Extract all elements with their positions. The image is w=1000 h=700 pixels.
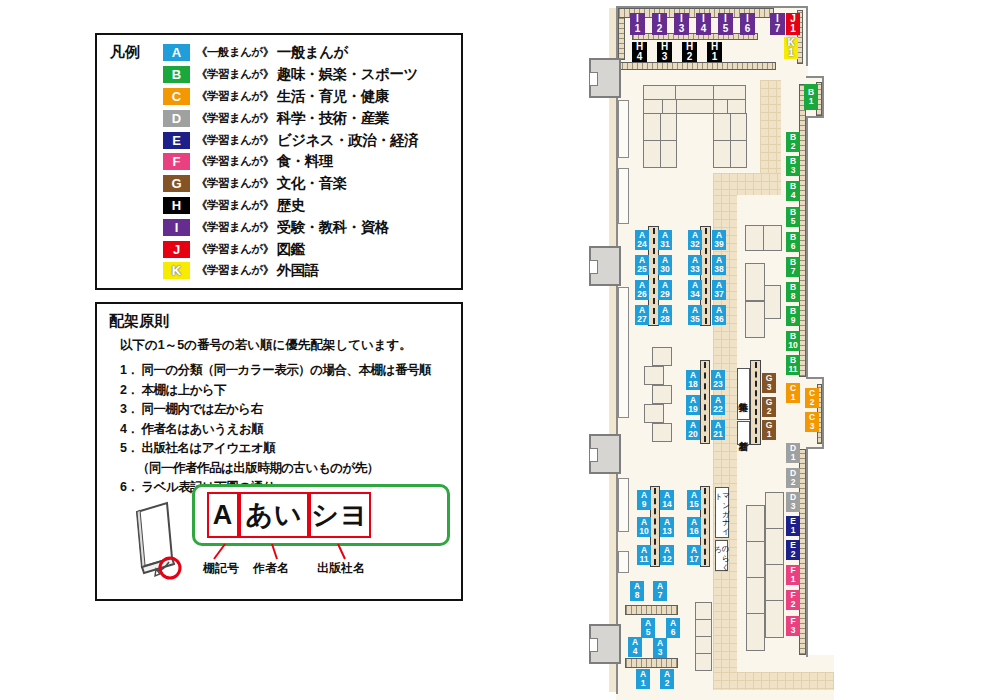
map-label-G3: G3 xyxy=(762,373,776,393)
legend-item-K: K《学習まんが》外国語 xyxy=(163,260,457,282)
side-shelf xyxy=(618,168,629,224)
wall xyxy=(806,116,824,118)
map-label-A2: A2 xyxy=(660,669,674,689)
map-label-A27: A27 xyxy=(635,305,649,325)
wall xyxy=(822,377,824,449)
map-label-text: 2 xyxy=(767,407,772,416)
rule-item-2: 2． 本棚は上から下 xyxy=(120,381,431,401)
map-label-D1: D1 xyxy=(786,443,800,463)
map-label-I7: I7 xyxy=(770,13,785,35)
label-example-box-3: シヨ xyxy=(309,492,371,538)
map-label-B8: B8 xyxy=(786,282,800,302)
legend-panel: 凡例 A《一般まんが》一般まんがB《学習まんが》趣味・娯楽・スポーツC《学習まん… xyxy=(95,33,463,290)
legend-rows: A《一般まんが》一般まんがB《学習まんが》趣味・娯楽・スポーツC《学習まんが》生… xyxy=(163,42,457,282)
map-label-text: 15 xyxy=(689,500,698,509)
map-label-text: 6 xyxy=(671,628,676,637)
table xyxy=(675,85,714,100)
map-label-K1: K1 xyxy=(784,37,798,59)
table xyxy=(676,99,714,114)
map-label-A25: A25 xyxy=(635,255,649,275)
table xyxy=(713,113,731,141)
map-label-D2: D2 xyxy=(786,468,800,488)
map-label-text: 27 xyxy=(637,315,646,324)
door xyxy=(589,624,621,664)
legend-label: 生活・育児・健康 xyxy=(277,87,389,106)
legend-series: 《一般まんが》 xyxy=(196,45,274,60)
shelf-block xyxy=(746,505,765,542)
map-label-text: 17 xyxy=(689,555,698,564)
map-label-text: 3 xyxy=(791,502,796,511)
map-label-B3: B3 xyxy=(786,156,800,176)
table xyxy=(660,113,677,141)
map-label-A3: A3 xyxy=(653,638,667,658)
map-label-text: 31 xyxy=(660,240,669,249)
map-label-text: 34 xyxy=(690,290,699,299)
map-label-A11: A11 xyxy=(637,545,651,565)
map-label-text: 22 xyxy=(713,405,722,414)
map-label-E1: E1 xyxy=(786,516,800,536)
map-label-text: 1 xyxy=(791,393,796,402)
wall-shelf xyxy=(616,62,776,70)
map-label-text: 2 xyxy=(657,24,663,35)
legend-series: 《学習まんが》 xyxy=(196,67,274,82)
map-label-text: 38 xyxy=(714,265,723,274)
map-label-A14: A14 xyxy=(660,490,674,510)
map-note-3: マンガナイト xyxy=(715,487,729,538)
map-label-A24: A24 xyxy=(635,230,649,250)
map-label-H1: H1 xyxy=(707,42,722,62)
book-shelf xyxy=(650,486,660,567)
map-label-text: 6 xyxy=(745,24,751,35)
map-label-A26: A26 xyxy=(635,280,649,300)
shelf-block xyxy=(695,636,712,654)
map-label-text: 19 xyxy=(688,405,697,414)
map-label-text: 2 xyxy=(791,478,796,487)
map-label-text: 1 xyxy=(712,52,718,63)
zigzag-shelf xyxy=(644,366,664,385)
map-label-text: 3 xyxy=(658,648,663,657)
map-label-A8: A8 xyxy=(630,581,644,601)
legend-series: 《学習まんが》 xyxy=(196,89,274,104)
shelf-block xyxy=(745,225,764,251)
map-label-text: 1 xyxy=(788,48,794,59)
map-label-text: 7 xyxy=(775,24,781,35)
map-label-A38: A38 xyxy=(712,255,726,275)
map-label-D3: D3 xyxy=(786,492,800,512)
shelf-block xyxy=(764,285,781,319)
legend-series: 《学習まんが》 xyxy=(196,154,274,169)
legend-label: 食・料理 xyxy=(277,152,333,171)
zigzag-shelf xyxy=(652,423,672,442)
map-label-A39: A39 xyxy=(712,230,726,250)
map-label-C1: C1 xyxy=(786,383,800,403)
book-shelf xyxy=(700,486,710,567)
map-label-text: 1 xyxy=(790,24,796,35)
map-label-text: 7 xyxy=(658,591,663,600)
book-shelf xyxy=(750,360,761,445)
legend-item-E: E《学習まんが》ビジネス・政治・経済 xyxy=(163,129,457,151)
map-label-A36: A36 xyxy=(712,305,726,325)
principles-title: 配架原則 xyxy=(109,312,169,331)
table xyxy=(713,140,731,168)
shelf-block xyxy=(765,564,784,601)
map-label-A1: A1 xyxy=(636,669,650,689)
map-label-I5: I5 xyxy=(718,13,733,35)
map-label-text: 9 xyxy=(642,500,647,509)
map-label-text: 2 xyxy=(791,550,796,559)
map-label-A34: A34 xyxy=(688,280,702,300)
table xyxy=(730,140,747,168)
label-example-box-1: A xyxy=(207,492,239,538)
legend-label: ビジネス・政治・経済 xyxy=(277,131,418,150)
shelf-block xyxy=(695,653,712,671)
table xyxy=(662,99,677,114)
map-label-text: 1 xyxy=(641,679,646,688)
legend-chip-A: A xyxy=(163,44,190,61)
label-caption-3: 出版社名 xyxy=(317,560,365,577)
legend-series: 《学習まんが》 xyxy=(196,263,274,278)
map-label-A5: A5 xyxy=(641,618,655,638)
map-label-A22: A22 xyxy=(711,395,725,415)
zigzag-shelf xyxy=(652,347,672,366)
map-label-text: 2 xyxy=(665,679,670,688)
map-label-A7: A7 xyxy=(653,581,667,601)
map-label-A32: A32 xyxy=(688,230,702,250)
map-label-B10: B10 xyxy=(786,331,800,351)
shelf-block xyxy=(765,492,784,529)
walkway xyxy=(713,672,834,690)
map-label-A28: A28 xyxy=(658,305,672,325)
map-label-text: 12 xyxy=(662,555,671,564)
legend-item-A: A《一般まんが》一般まんが xyxy=(163,42,457,64)
legend-item-G: G《学習まんが》文化・音楽 xyxy=(163,173,457,195)
wall-right xyxy=(806,449,808,657)
map-label-text: 36 xyxy=(714,315,723,324)
map-label-B2: B2 xyxy=(786,132,800,152)
principles-rules: 1． 同一の分類（同一カラー表示）の場合、本棚は番号順2． 本棚は上から下3． … xyxy=(120,361,431,498)
map-label-B7: B7 xyxy=(786,257,800,277)
map-label-H4: H4 xyxy=(632,42,647,62)
shelf-block xyxy=(746,613,765,651)
legend-chip-B: B xyxy=(163,66,190,83)
table xyxy=(643,140,661,168)
map-label-F2: F2 xyxy=(786,590,800,610)
legend-series: 《学習まんが》 xyxy=(196,111,274,126)
legend-label: 歴史 xyxy=(277,196,305,215)
walkway xyxy=(760,80,781,175)
legend-chip-E: E xyxy=(163,132,190,149)
legend-chip-F: F xyxy=(163,153,190,170)
walkway xyxy=(713,173,781,195)
table xyxy=(713,99,728,114)
map-label-text: 1 xyxy=(809,97,814,106)
legend-label: 科学・技術・産業 xyxy=(277,109,389,128)
map-label-A10: A10 xyxy=(637,517,651,537)
map-label-text: 13 xyxy=(662,527,671,536)
shelf-block xyxy=(765,600,784,638)
map-note-4: のらくろ xyxy=(715,540,728,571)
legend-label: 一般まんが xyxy=(277,43,348,62)
map-label-text: 7 xyxy=(791,267,796,276)
map-label-I4: I4 xyxy=(696,13,711,35)
legend-series: 《学習まんが》 xyxy=(196,198,274,213)
legend-label: 文化・音楽 xyxy=(277,174,347,193)
map-label-A31: A31 xyxy=(658,230,672,250)
map-label-B6: B6 xyxy=(786,232,800,252)
map-label-text: 20 xyxy=(688,430,697,439)
rule-item-3: 3． 同一棚内では左から右 xyxy=(120,400,431,420)
map-label-text: 1 xyxy=(767,430,772,439)
principles-panel: 配架原則 以下の1～5の番号の若い順に優先配架しています。 1． 同一の分類（同… xyxy=(95,302,463,601)
map-label-A12: A12 xyxy=(660,545,674,565)
door xyxy=(589,58,621,98)
map-label-I6: I6 xyxy=(740,13,755,35)
legend-series: 《学習まんが》 xyxy=(196,220,274,235)
label-example-box-2: あい xyxy=(239,492,309,538)
legend-chip-I: I xyxy=(163,219,190,236)
map-label-text: 1 xyxy=(791,575,796,584)
map-label-text: 21 xyxy=(713,430,722,439)
map-label-A15: A15 xyxy=(687,490,701,510)
map-label-text: 10 xyxy=(639,527,648,536)
side-shelf xyxy=(618,478,629,532)
legend-item-C: C《学習まんが》生活・育児・健康 xyxy=(163,86,457,108)
map-label-text: 35 xyxy=(690,315,699,324)
floor-map: I1I2I3I4I5I6I7J1K1H4H3H2H1B1B2B3B4B5B6B7… xyxy=(598,0,850,700)
legend-title: 凡例 xyxy=(110,43,140,62)
map-label-F1: F1 xyxy=(786,565,800,585)
side-shelf xyxy=(618,100,629,158)
map-label-text: 9 xyxy=(791,316,796,325)
map-label-J1: J1 xyxy=(786,13,800,35)
shelf-block xyxy=(745,301,765,338)
map-label-G1: G1 xyxy=(762,420,776,440)
map-label-text: 1 xyxy=(635,24,641,35)
map-label-B9: B9 xyxy=(786,306,800,326)
map-label-text: 2 xyxy=(791,142,796,151)
label-example-frame: Aあいシヨ xyxy=(192,484,450,546)
legend-item-I: I《学習まんが》受験・教科・資格 xyxy=(163,216,457,238)
side-shelf xyxy=(618,551,629,573)
map-label-text: 37 xyxy=(714,290,723,299)
legend-item-J: J《学習まんが》図鑑 xyxy=(163,238,457,260)
map-label-A30: A30 xyxy=(658,255,672,275)
wall xyxy=(806,447,824,449)
legend-chip-J: J xyxy=(163,241,190,258)
map-label-C2: C2 xyxy=(805,388,819,408)
table xyxy=(643,113,661,141)
map-label-F3: F3 xyxy=(786,616,800,636)
door xyxy=(589,246,621,286)
map-label-A21: A21 xyxy=(711,420,725,440)
map-label-I1: I1 xyxy=(630,13,645,35)
wall-right xyxy=(806,6,808,66)
map-label-A9: A9 xyxy=(637,490,651,510)
map-label-text: 23 xyxy=(713,380,722,389)
map-label-text: 4 xyxy=(701,24,707,35)
map-label-text: 16 xyxy=(689,527,698,536)
shelf-block xyxy=(746,577,765,614)
map-label-B5: B5 xyxy=(786,207,800,227)
map-label-text: 8 xyxy=(791,292,796,301)
map-label-A6: A6 xyxy=(666,618,680,638)
legend-series: 《学習まんが》 xyxy=(196,242,274,257)
map-label-A19: A19 xyxy=(686,395,700,415)
legend-chip-G: G xyxy=(163,175,190,192)
legend-chip-H: H xyxy=(163,197,190,214)
map-label-I2: I2 xyxy=(652,13,667,35)
label-caption-2: 作者名 xyxy=(253,560,289,577)
map-label-G2: G2 xyxy=(762,397,776,417)
legend-item-F: F《学習まんが》食・料理 xyxy=(163,151,457,173)
rule-item-1: 1． 同一の分類（同一カラー表示）の場合、本棚は番号順 xyxy=(120,361,431,381)
table xyxy=(713,85,746,100)
map-label-A4: A4 xyxy=(628,637,642,657)
map-label-text: 6 xyxy=(791,242,796,251)
map-label-B1: B1 xyxy=(804,84,818,110)
map-label-text: 3 xyxy=(791,166,796,175)
shelf-block xyxy=(695,602,712,620)
wall-shelf xyxy=(799,84,806,377)
map-label-text: 3 xyxy=(662,52,668,63)
map-label-text: 4 xyxy=(633,647,638,656)
map-label-A33: A33 xyxy=(688,255,702,275)
map-note-1: 特集 xyxy=(737,368,750,420)
wall-right xyxy=(806,116,808,379)
map-label-text: 2 xyxy=(791,600,796,609)
map-label-text: 2 xyxy=(810,398,815,407)
book-icon xyxy=(127,496,185,588)
map-label-A23: A23 xyxy=(711,370,725,390)
rule-item-4: 4． 作者名はあいうえお順 xyxy=(120,420,431,440)
map-label-A37: A37 xyxy=(712,280,726,300)
legend-label: 外国語 xyxy=(277,261,319,280)
map-label-A29: A29 xyxy=(658,280,672,300)
map-label-text: 3 xyxy=(679,24,685,35)
book-shelf xyxy=(700,360,710,444)
map-label-text: 8 xyxy=(635,591,640,600)
map-label-text: 11 xyxy=(640,555,649,564)
zigzag-shelf xyxy=(652,385,672,404)
legend-item-H: H《学習まんが》歴史 xyxy=(163,195,457,217)
map-label-text: 1 xyxy=(791,453,796,462)
map-label-A18: A18 xyxy=(686,370,700,390)
table xyxy=(643,85,676,100)
legend-chip-D: D xyxy=(163,110,190,127)
map-label-A20: A20 xyxy=(686,420,700,440)
map-label-text: 3 xyxy=(791,626,796,635)
legend-chip-C: C xyxy=(163,88,190,105)
map-label-A16: A16 xyxy=(687,517,701,537)
wall xyxy=(822,76,824,118)
label-caption-1: 棚記号 xyxy=(203,560,239,577)
map-label-E2: E2 xyxy=(786,540,800,560)
legend-item-B: B《学習まんが》趣味・娯楽・スポーツ xyxy=(163,64,457,86)
principles-intro: 以下の1～5の番号の若い順に優先配架しています。 xyxy=(120,337,412,354)
map-label-text: 14 xyxy=(662,500,671,509)
map-label-text: 4 xyxy=(637,52,643,63)
map-label-text: 33 xyxy=(690,265,699,274)
map-label-text: 39 xyxy=(714,240,723,249)
map-label-text: 18 xyxy=(688,380,697,389)
map-note-2: 新着 xyxy=(737,421,750,445)
map-label-text: 11 xyxy=(789,365,798,374)
table xyxy=(730,113,747,141)
wall-shelf xyxy=(799,449,806,655)
map-label-text: 3 xyxy=(767,383,772,392)
map-label-A13: A13 xyxy=(660,517,674,537)
map-label-H2: H2 xyxy=(682,42,697,62)
rule-item-5: 5． 出版社名はアイウエオ順（同一作者作品は出版時期の古いものが先） xyxy=(120,439,431,478)
map-label-text: 29 xyxy=(660,290,669,299)
map-label-text: 28 xyxy=(660,315,669,324)
shelf-block xyxy=(746,541,765,578)
shelf-block xyxy=(695,619,712,637)
map-label-text: 4 xyxy=(791,191,796,200)
legend-series: 《学習まんが》 xyxy=(196,133,274,148)
map-label-text: 32 xyxy=(690,240,699,249)
label-pointer-lines xyxy=(192,544,450,560)
map-label-text: 5 xyxy=(723,24,729,35)
table xyxy=(727,99,746,114)
legend-label: 図鑑 xyxy=(277,240,305,259)
map-label-text: 26 xyxy=(637,290,646,299)
door xyxy=(589,434,621,474)
shelf-block xyxy=(745,263,765,301)
map-label-H3: H3 xyxy=(657,42,672,62)
map-label-text: 25 xyxy=(637,265,646,274)
walkway-left-strip xyxy=(609,8,616,692)
map-label-text: 5 xyxy=(646,628,651,637)
map-label-text: 1 xyxy=(791,526,796,535)
legend-series: 《学習まんが》 xyxy=(196,176,274,191)
map-label-B11: B11 xyxy=(786,355,800,375)
book-shelf xyxy=(625,658,678,668)
map-label-C3: C3 xyxy=(805,412,819,432)
map-label-A17: A17 xyxy=(687,545,701,565)
table xyxy=(660,140,677,168)
map-label-text: 24 xyxy=(637,240,646,249)
legend-label: 受験・教科・資格 xyxy=(277,218,389,237)
side-shelf xyxy=(618,287,629,418)
map-label-I3: I3 xyxy=(674,13,689,35)
map-label-A35: A35 xyxy=(688,305,702,325)
map-label-text: 30 xyxy=(660,265,669,274)
shelf-block xyxy=(765,528,784,565)
map-label-text: 2 xyxy=(687,52,693,63)
map-label-B4: B4 xyxy=(786,181,800,201)
legend-label: 趣味・娯楽・スポーツ xyxy=(277,65,418,84)
map-label-text: 3 xyxy=(810,422,815,431)
map-label-text: 5 xyxy=(791,217,796,226)
shelf-block xyxy=(763,225,782,251)
rule-note: （同一作者作品は出版時期の古いものが先） xyxy=(120,459,431,479)
zigzag-shelf xyxy=(644,404,664,423)
map-label-text: 10 xyxy=(788,341,797,350)
legend-chip-K: K xyxy=(163,262,190,279)
book-shelf xyxy=(625,605,678,615)
table xyxy=(643,99,663,114)
legend-item-D: D《学習まんが》科学・技術・産業 xyxy=(163,107,457,129)
